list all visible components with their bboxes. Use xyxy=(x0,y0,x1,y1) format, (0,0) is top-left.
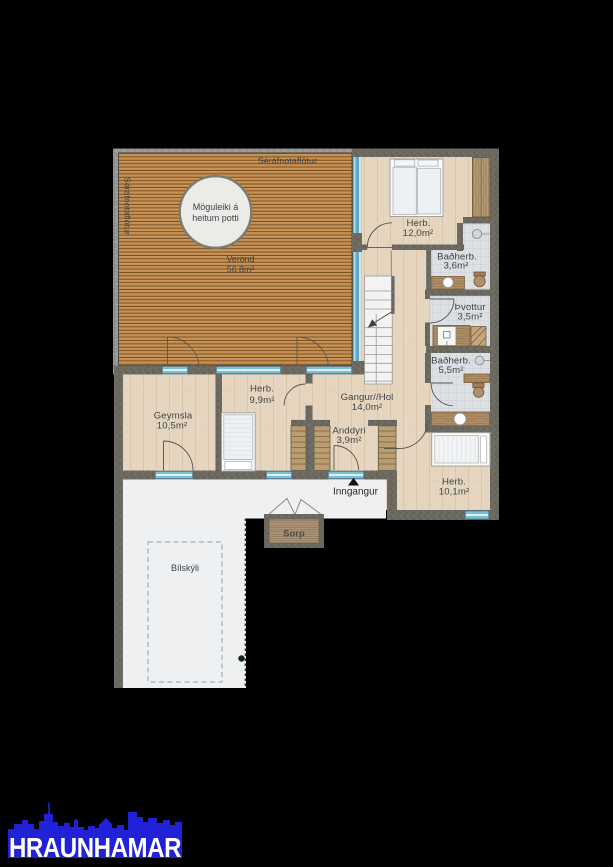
svg-text:Sorp: Sorp xyxy=(283,529,305,540)
svg-text:14,0m²: 14,0m² xyxy=(352,402,383,413)
svg-text:HRAUNHAMAR: HRAUNHAMAR xyxy=(9,832,181,863)
svg-text:heitum potti: heitum potti xyxy=(192,213,239,223)
svg-text:Verönd: Verönd xyxy=(227,254,255,264)
svg-text:Möguleiki á: Möguleiki á xyxy=(193,202,239,212)
svg-text:3,9m²: 3,9m² xyxy=(336,435,362,446)
svg-text:Séráfnotaflötur: Séráfnotaflötur xyxy=(123,177,133,235)
svg-text:5,5m²: 5,5m² xyxy=(438,365,464,376)
svg-text:10,5m²: 10,5m² xyxy=(157,421,188,432)
svg-text:Herb.: Herb. xyxy=(250,384,274,395)
svg-text:12,0m²: 12,0m² xyxy=(403,228,434,239)
svg-text:Bílskýli: Bílskýli xyxy=(171,563,199,573)
svg-text:56,8m²: 56,8m² xyxy=(227,265,254,275)
svg-text:10,1m²: 10,1m² xyxy=(439,487,470,498)
svg-text:Séráfnotaflötur: Séráfnotaflötur xyxy=(258,156,317,166)
svg-text:Inngangur: Inngangur xyxy=(333,487,379,498)
svg-text:3,6m²: 3,6m² xyxy=(443,261,469,272)
svg-text:9,9m²: 9,9m² xyxy=(249,395,275,406)
svg-text:3,5m²: 3,5m² xyxy=(457,312,483,323)
